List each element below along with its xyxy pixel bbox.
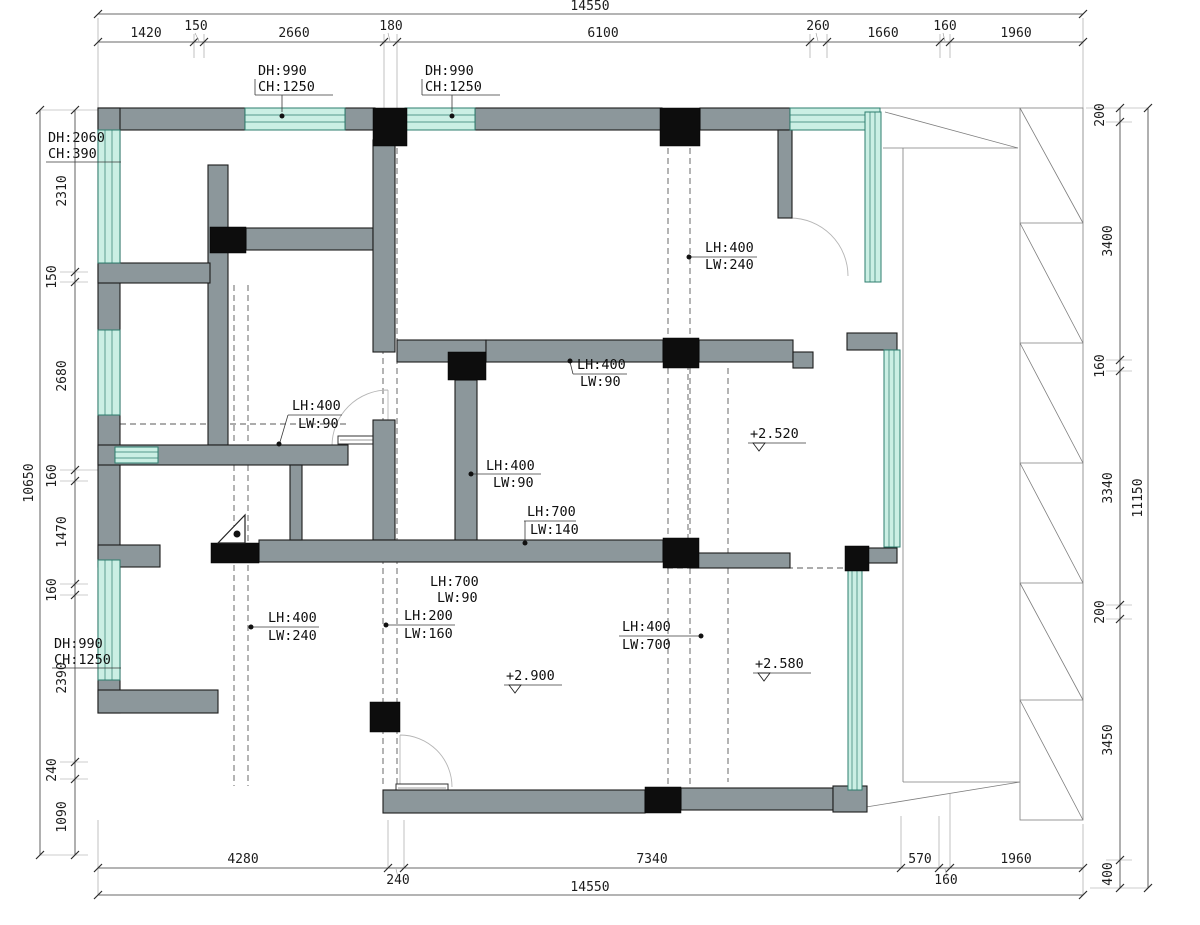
beam-label: LH:700 LW:140 <box>523 504 579 546</box>
window-label-text: CH:390 <box>48 146 97 162</box>
column <box>211 543 259 563</box>
wall-segment <box>475 108 662 130</box>
column <box>210 227 246 253</box>
wall-segment <box>259 540 663 562</box>
dim-bottom-segment: 240 <box>386 873 409 888</box>
elevation-mark: +2.900 <box>504 668 562 693</box>
beam-label: LH:400 LW:90 <box>469 458 542 491</box>
beam-label: LH:700 LW:90 <box>430 574 479 606</box>
dimension-chain-right: 11150 200 3400 160 3340 200 3450 400 <box>1093 103 1152 892</box>
column <box>448 352 486 380</box>
beam-dashed-rect <box>470 362 688 542</box>
beam-label-text: LW:240 <box>268 628 317 644</box>
wall-segment <box>681 788 833 810</box>
dimension-chain-top: 14550 1420 150 2660 180 6100 260 1660 16… <box>94 0 1087 46</box>
window <box>405 108 475 130</box>
beam-label-text: LH:400 <box>486 458 535 474</box>
balcony-door-arc <box>790 218 848 276</box>
beam-label-text: LW:90 <box>580 374 621 390</box>
window <box>98 330 120 415</box>
wall-segment <box>373 140 395 352</box>
dim-top-segment: 150 <box>184 19 207 34</box>
dim-top-segment: 160 <box>933 19 956 34</box>
column <box>645 787 681 813</box>
beam-label: LH:400 LW:700 <box>619 619 704 653</box>
beam-label-text: LW:90 <box>493 475 534 491</box>
window-label-text: DH:990 <box>425 63 474 79</box>
elevation-mark: +2.520 <box>748 426 806 451</box>
wall-segment <box>98 690 218 713</box>
wall-segment <box>699 340 793 362</box>
beam-label-text: LW:90 <box>437 590 478 606</box>
dim-left-segment: 160 <box>45 464 60 487</box>
dim-left-total: 10650 <box>22 463 37 502</box>
dim-top-total: 14550 <box>570 0 609 14</box>
beam-label: LH:400 LW:240 <box>249 610 320 644</box>
column <box>663 538 699 568</box>
dim-left-segment: 2310 <box>55 175 70 206</box>
dim-top-segment: 180 <box>379 19 402 34</box>
window <box>865 112 881 282</box>
entry-door-arc <box>400 735 452 787</box>
window-label-text: CH:1250 <box>258 79 315 95</box>
dim-top-segment: 6100 <box>587 26 618 41</box>
dim-left-segment: 2390 <box>55 662 70 693</box>
window <box>848 568 862 790</box>
beam-label: LH:400 LW:240 <box>687 240 758 273</box>
dim-left-segment: 1090 <box>55 801 70 832</box>
elevation-mark: +2.580 <box>753 656 811 681</box>
dimension-chain-left: 10650 2310 150 2680 160 1470 160 2390 24… <box>22 106 79 859</box>
dim-left-segment: 1470 <box>55 516 70 547</box>
dim-bottom-segment: 570 <box>908 852 931 867</box>
window <box>98 130 120 263</box>
corner-detail <box>218 515 245 543</box>
dim-top-segment: 260 <box>806 19 829 34</box>
dim-top-segment: 1660 <box>867 26 898 41</box>
wall-segment <box>486 340 663 362</box>
dim-right-segment: 3450 <box>1101 724 1116 755</box>
wall-segment <box>778 130 792 218</box>
wall-segment <box>373 420 395 540</box>
dim-left-segment: 150 <box>45 265 60 288</box>
dim-top-segment: 1420 <box>130 26 161 41</box>
column <box>845 546 869 571</box>
wall-segment <box>867 548 897 563</box>
doors <box>332 218 848 792</box>
dim-left-segment: 2680 <box>55 360 70 391</box>
wall-segment <box>383 790 645 813</box>
beam-label-text: LW:240 <box>705 257 754 273</box>
wall-segment <box>345 108 375 130</box>
beam-label-text: LH:200 <box>404 608 453 624</box>
dim-top-segment: 2660 <box>278 26 309 41</box>
dim-right-segment: 3340 <box>1101 472 1116 503</box>
dim-right-segment: 3400 <box>1101 225 1116 256</box>
window <box>884 350 900 547</box>
dim-right-segment: 160 <box>1093 354 1108 377</box>
beam-label-text: LW:140 <box>530 522 579 538</box>
dim-bottom-segment: 160 <box>934 873 957 888</box>
wall-segment <box>793 352 813 368</box>
window-label-text: CH:1250 <box>425 79 482 95</box>
window-label-text: DH:990 <box>258 63 307 79</box>
beam-label: LH:200 LW:160 <box>384 608 456 642</box>
dim-top-segment: 1960 <box>1000 26 1031 41</box>
dim-right-segment: 200 <box>1093 600 1108 623</box>
wall-segment <box>98 263 210 283</box>
window <box>245 108 345 130</box>
elevation-text: +2.580 <box>755 656 804 672</box>
dim-bottom-segment: 4280 <box>227 852 258 867</box>
floor-plan-drawing: DH:990 CH:1250 DH:990 CH:1250 DH:2060 CH… <box>0 0 1200 925</box>
column <box>663 338 699 368</box>
wall-segment <box>690 553 790 568</box>
wall-segment <box>847 333 897 350</box>
beam-label-text: LH:400 <box>577 357 626 373</box>
dim-bottom-segment: 7340 <box>636 852 667 867</box>
column <box>370 702 400 732</box>
beam-label-text: LH:400 <box>268 610 317 626</box>
dim-right-segment: 400 <box>1101 862 1116 885</box>
dimension-chain-bottom: 14550 4280 240 7340 570 160 1960 <box>94 852 1087 899</box>
beam-label-text: LH:700 <box>527 504 576 520</box>
beam-label-text: LH:400 <box>705 240 754 256</box>
interior-walls <box>98 130 897 568</box>
dim-bottom-segment: 1960 <box>1000 852 1031 867</box>
beam-label-text: LW:160 <box>404 626 453 642</box>
beam-label-text: LH:400 <box>292 398 341 414</box>
window-label-text: DH:2060 <box>48 130 105 146</box>
window-label-text: DH:990 <box>54 636 103 652</box>
floor-plan-svg: DH:990 CH:1250 DH:990 CH:1250 DH:2060 CH… <box>0 0 1200 925</box>
beam-label-text: LW:90 <box>298 416 339 432</box>
dim-left-segment: 160 <box>45 578 60 601</box>
beam-label: LH:400 LW:90 <box>568 357 628 390</box>
beam-label-text: LW:700 <box>622 637 671 653</box>
column <box>373 108 407 146</box>
dim-right-segment: 200 <box>1093 103 1108 126</box>
dim-left-segment: 240 <box>45 758 60 781</box>
window <box>115 447 158 463</box>
dim-bottom-total: 14550 <box>570 880 609 895</box>
elevation-text: +2.900 <box>506 668 555 684</box>
wall-segment <box>455 380 477 550</box>
wall-segment <box>246 228 373 250</box>
beam-label-text: LH:700 <box>430 574 479 590</box>
wall-segment <box>290 465 302 540</box>
wall-segment <box>208 165 228 445</box>
hatch-strip <box>1020 108 1083 820</box>
column <box>660 108 700 146</box>
elevation-text: +2.520 <box>750 426 799 442</box>
beam-label-text: LH:400 <box>622 619 671 635</box>
dim-right-total: 11150 <box>1131 478 1146 517</box>
wall-segment <box>700 108 790 130</box>
